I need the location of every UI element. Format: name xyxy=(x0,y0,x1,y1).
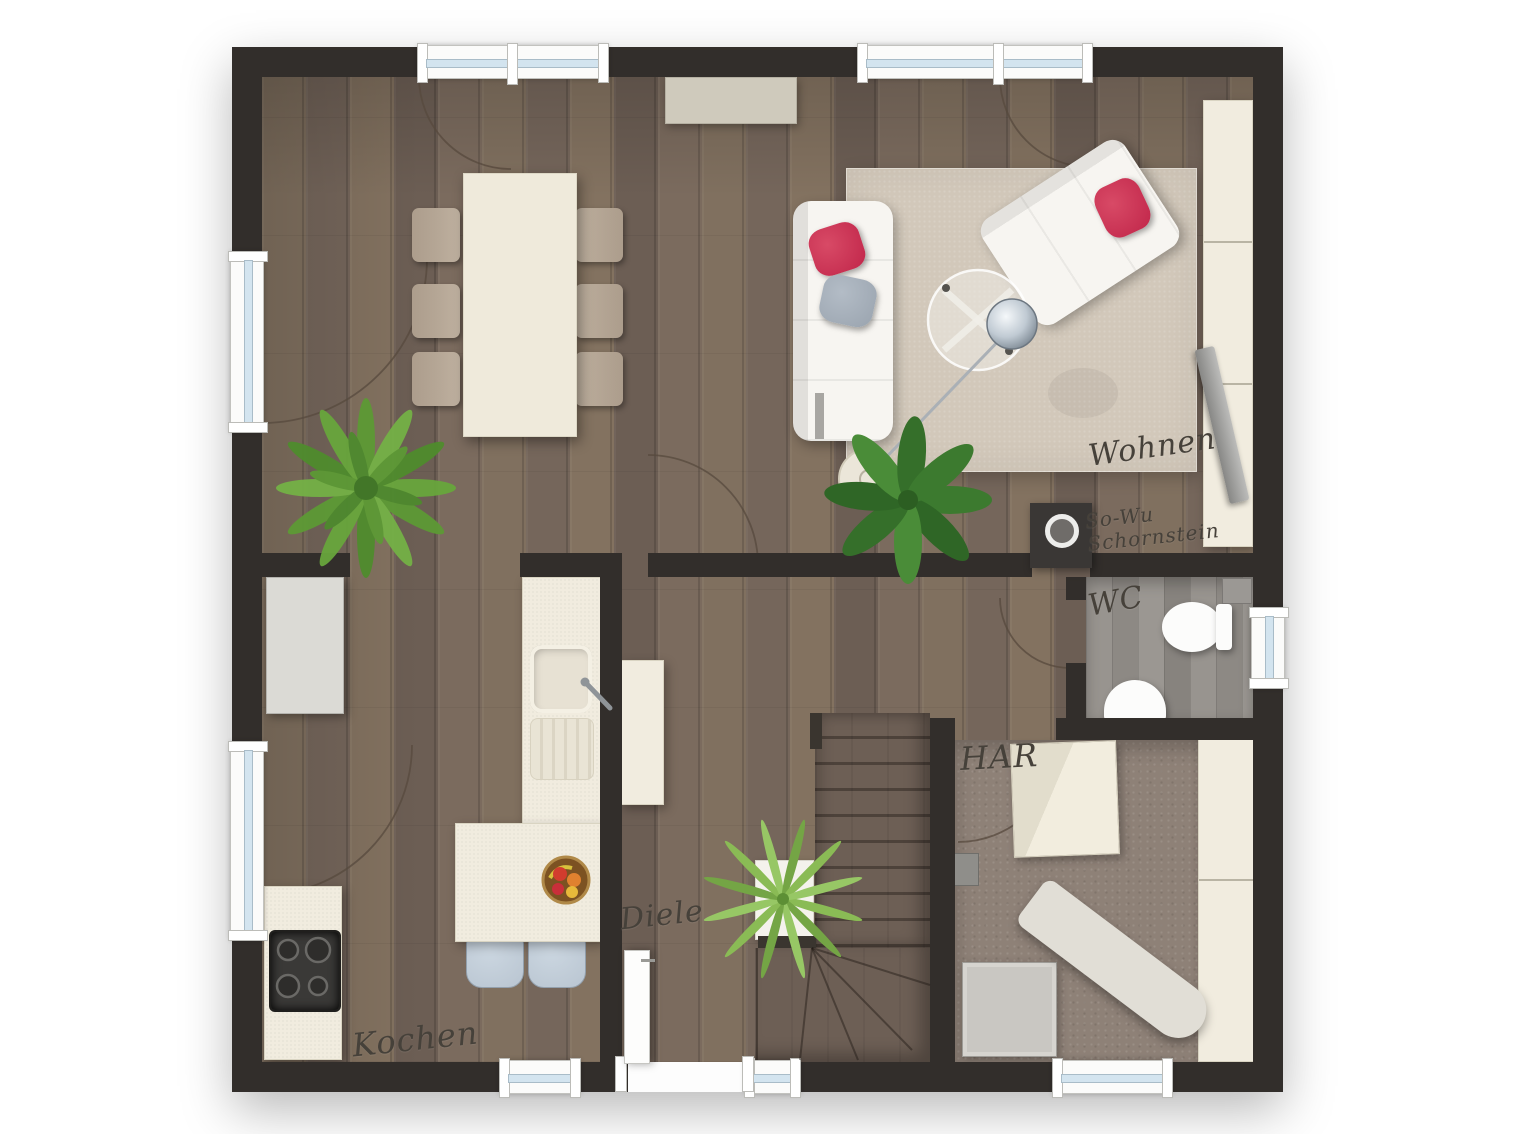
dining-chair xyxy=(412,208,460,262)
window-glass xyxy=(244,750,253,932)
wall-kitchen-hall xyxy=(600,577,622,1062)
window-terrace-door xyxy=(858,45,1092,79)
window-glass xyxy=(866,59,1084,68)
stairs-winder xyxy=(755,948,930,1062)
toilet xyxy=(1162,602,1222,652)
sofa-frame-bar xyxy=(815,393,824,439)
wall-right xyxy=(1253,47,1283,608)
toilet-tank xyxy=(1216,604,1232,650)
hall-wardrobe xyxy=(620,660,664,805)
window-glass xyxy=(508,1074,572,1083)
red-pillow-2 xyxy=(1089,173,1155,242)
wall-wc-north xyxy=(1090,553,1253,577)
floor-plan-canvas: Wohnen So-Wu Schornstein WC HAR Diele Ko… xyxy=(0,0,1513,1134)
wall-wc-west-stub xyxy=(1066,577,1086,600)
wall-bottom xyxy=(232,1062,500,1092)
wall-kitchen-north xyxy=(520,553,622,577)
stair-planter xyxy=(755,860,814,940)
washing-machine xyxy=(962,962,1057,1057)
wall-left xyxy=(232,47,262,252)
gray-pillow xyxy=(817,272,880,330)
wall-bottom xyxy=(800,1062,1053,1092)
entrance-door-leaf xyxy=(624,950,650,1064)
dining-chair xyxy=(575,352,623,406)
window-glass xyxy=(244,260,253,424)
red-pillow xyxy=(805,218,869,280)
window-glass xyxy=(753,1074,792,1083)
window-glass xyxy=(1061,1074,1164,1083)
sofa xyxy=(793,201,893,441)
door-frame-stub xyxy=(742,1056,754,1092)
stove-cooktop xyxy=(269,930,341,1012)
rug-shadow-patch xyxy=(1048,368,1118,418)
dining-chair xyxy=(575,208,623,262)
wall-left xyxy=(232,432,262,742)
window-mullion xyxy=(993,43,1004,85)
wall-top xyxy=(608,47,858,77)
dining-table xyxy=(463,173,577,437)
window-mullion xyxy=(507,43,518,85)
chimney-flue-icon xyxy=(1045,514,1079,548)
window-glass xyxy=(1265,616,1274,680)
fridge xyxy=(266,577,344,714)
dining-chair xyxy=(412,284,460,338)
wall-kitchen-north xyxy=(262,553,350,577)
sink-drainboard xyxy=(530,718,594,780)
wc-cistern-box xyxy=(1222,578,1252,604)
window-kitchen xyxy=(230,742,264,940)
tv-board-divider xyxy=(1204,241,1252,243)
wall-har-west xyxy=(930,718,955,1062)
cabinet-divider xyxy=(1199,879,1253,881)
window-wc xyxy=(1251,608,1285,688)
door-handle-icon xyxy=(641,959,655,962)
dining-chair xyxy=(575,284,623,338)
window-har-south xyxy=(1053,1060,1172,1094)
sideboard-top xyxy=(665,77,797,124)
stairs-straight-flight xyxy=(815,713,930,948)
kitchen-sink xyxy=(530,645,592,713)
window-top-left xyxy=(418,45,608,79)
stair-rail-stub xyxy=(758,936,816,948)
kitchen-island xyxy=(455,823,602,942)
wall-right xyxy=(1253,688,1283,1092)
wall-har-north xyxy=(1056,718,1253,740)
wall-living-south xyxy=(648,553,1032,577)
wall-left xyxy=(232,940,262,1092)
stair-rail-stub xyxy=(810,713,822,749)
window-left-terrace xyxy=(230,252,264,432)
room-label-har: HAR xyxy=(959,736,1039,778)
window-kitchen-south xyxy=(500,1060,580,1094)
dining-chair xyxy=(412,352,460,406)
chimney-block xyxy=(1030,503,1092,568)
